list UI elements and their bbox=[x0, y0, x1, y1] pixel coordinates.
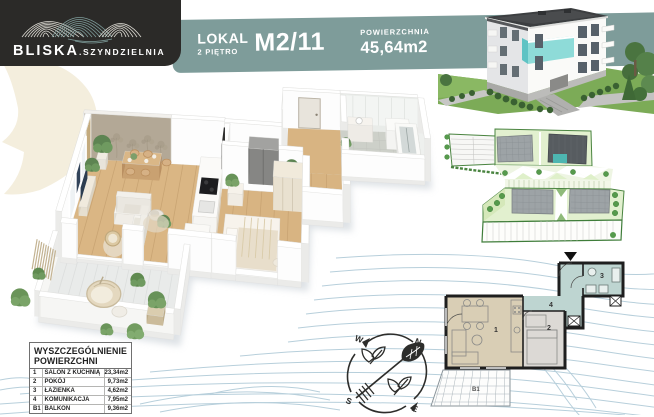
svg-text:B1: B1 bbox=[472, 387, 480, 393]
svg-text:1: 1 bbox=[494, 327, 498, 334]
svg-text:E: E bbox=[410, 403, 419, 415]
svg-text:3: 3 bbox=[600, 273, 604, 280]
svg-text:S: S bbox=[344, 395, 353, 407]
svg-text:2: 2 bbox=[547, 325, 551, 332]
svg-text:4: 4 bbox=[549, 302, 553, 309]
